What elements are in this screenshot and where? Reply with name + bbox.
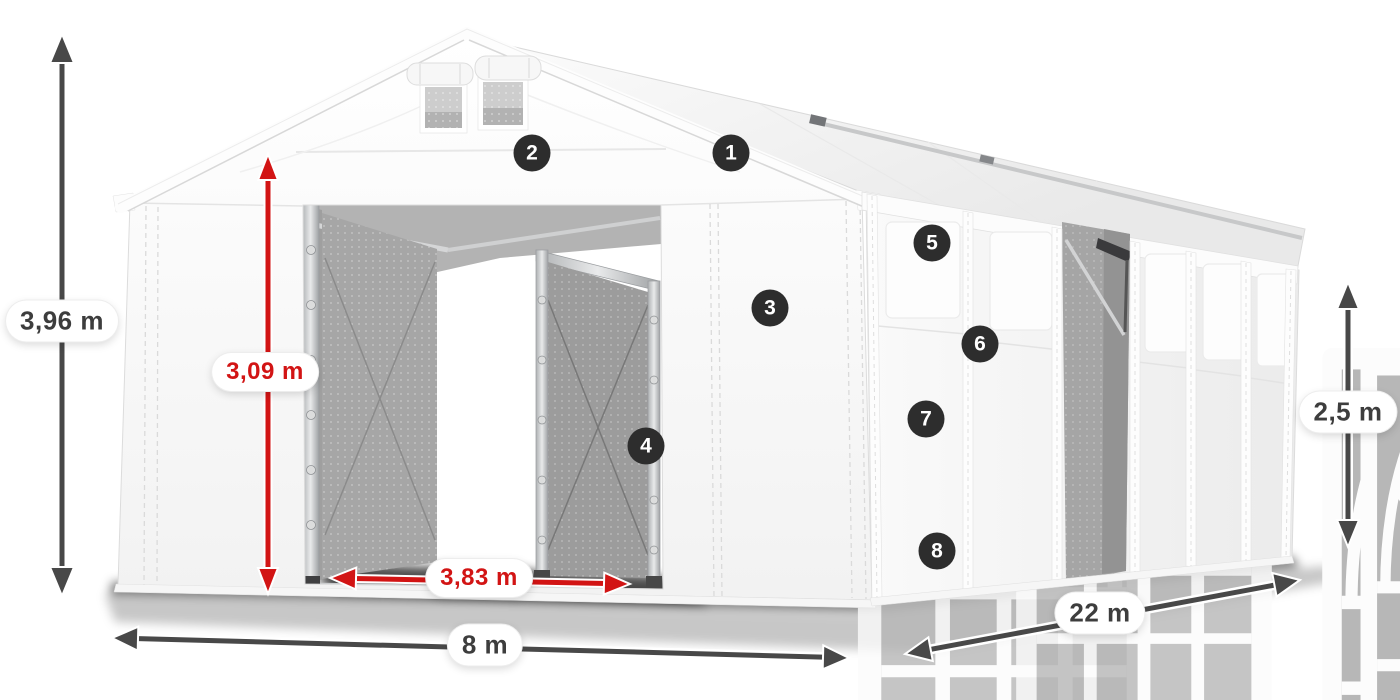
side-door-opening <box>1062 222 1132 583</box>
dimension-label-entrance-width: 3,83 m <box>426 559 532 597</box>
feature-marker-6: 6 <box>962 326 999 363</box>
feature-marker-1: 1 <box>713 135 750 172</box>
feature-marker-2: 2 <box>514 135 551 172</box>
dimension-label-side-wall-height: 2,5 m <box>1300 392 1397 433</box>
dimension-label-length: 22 m <box>1055 593 1144 634</box>
feature-marker-3: 3 <box>752 290 789 327</box>
dimension-label-gable-width: 8 m <box>448 625 522 666</box>
dimension-label-entrance-height: 3,09 m <box>212 353 318 391</box>
tent-dimension-diagram: 3,96 m 3,09 m 3,83 m 8 m 22 m 2,5 m 1 2 … <box>0 0 1400 700</box>
feature-marker-5: 5 <box>914 225 951 262</box>
tent-illustration <box>0 0 1400 700</box>
dimension-label-total-height: 3,96 m <box>6 301 118 342</box>
feature-marker-4: 4 <box>628 428 665 465</box>
feature-marker-8: 8 <box>919 533 956 570</box>
feature-marker-7: 7 <box>908 401 945 438</box>
